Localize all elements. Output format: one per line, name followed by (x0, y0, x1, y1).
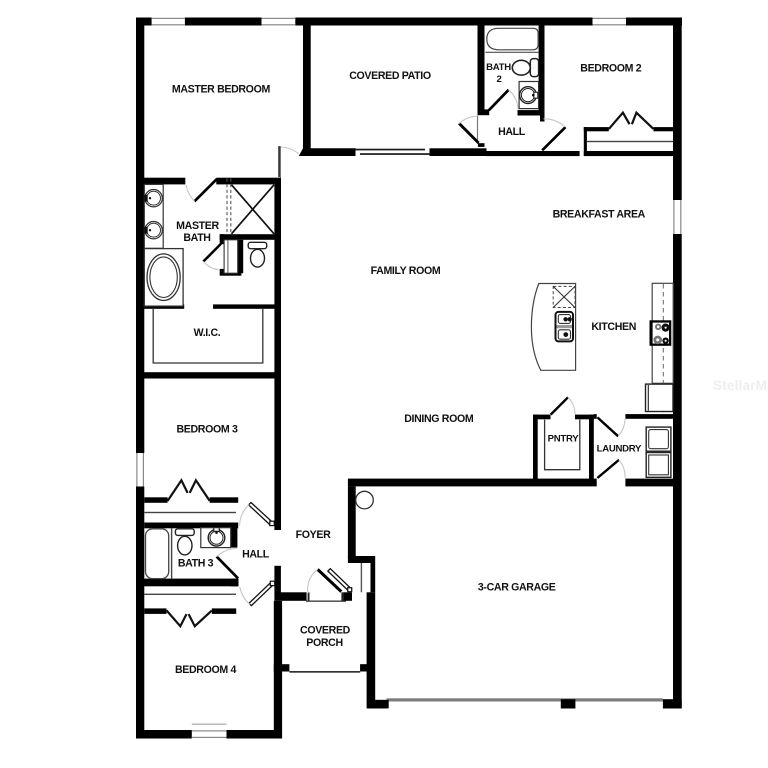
svg-text:BATH 3: BATH 3 (178, 557, 214, 569)
svg-text:BEDROOM 3: BEDROOM 3 (176, 423, 237, 435)
svg-text:FAMILY ROOM: FAMILY ROOM (371, 265, 441, 277)
svg-text:COVERED: COVERED (300, 624, 351, 636)
svg-text:BATH: BATH (183, 232, 210, 244)
svg-text:StellarMLS: StellarMLS (713, 378, 768, 393)
svg-text:FOYER: FOYER (296, 529, 331, 541)
svg-text:DINING ROOM: DINING ROOM (404, 413, 474, 425)
svg-text:PNTRY: PNTRY (548, 433, 580, 444)
svg-text:W.I.C.: W.I.C. (194, 327, 221, 339)
svg-text:BATH: BATH (486, 62, 511, 73)
svg-text:MASTER: MASTER (176, 220, 219, 232)
svg-text:COVERED PATIO: COVERED PATIO (349, 70, 431, 82)
svg-text:LAUNDRY: LAUNDRY (597, 443, 642, 454)
svg-text:BEDROOM 4: BEDROOM 4 (175, 664, 236, 676)
svg-text:MASTER BEDROOM: MASTER BEDROOM (172, 83, 271, 95)
svg-text:3-CAR GARAGE: 3-CAR GARAGE (478, 581, 556, 593)
svg-text:HALL: HALL (498, 126, 526, 138)
svg-text:HALL: HALL (242, 548, 270, 560)
svg-text:KITCHEN: KITCHEN (591, 321, 636, 333)
svg-text:2: 2 (496, 74, 501, 85)
svg-text:BEDROOM 2: BEDROOM 2 (580, 63, 641, 75)
svg-text:PORCH: PORCH (306, 637, 343, 649)
svg-text:BREAKFAST AREA: BREAKFAST AREA (553, 209, 646, 221)
